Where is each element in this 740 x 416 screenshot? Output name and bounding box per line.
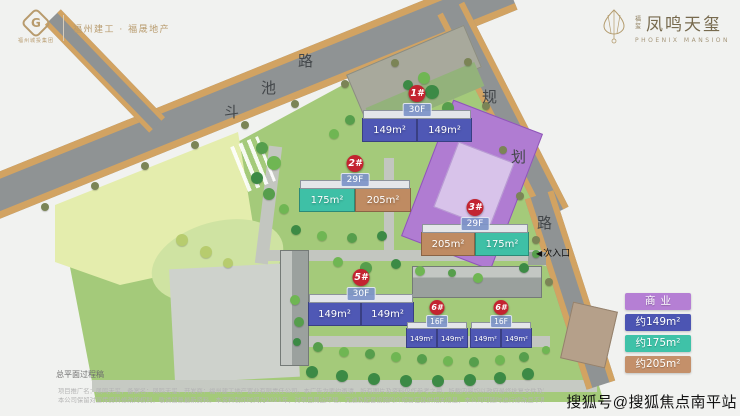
building-number-badge: 5# [353,269,370,286]
tree [391,259,401,269]
tree [425,85,439,99]
tree [464,58,472,66]
building-1#: 1#30F149m²149m² [362,118,472,142]
tree [341,80,349,88]
partner-brands-text: 福州建工 · 福晟地产 [73,22,170,35]
building-number-badge: 6# [430,300,445,315]
floor-count-chip: 30F [403,103,432,117]
project-logo-text: 福玺 凤鸣天玺 PHOENIX MANSION [635,10,730,44]
floor-count-chip: 30F [347,287,376,301]
entrance-arrow-icon: ◀ [536,249,542,258]
legend: 商业约149m²约175m²约205m² [625,293,691,377]
unit-row: 149m²149m² [308,302,414,326]
tree [336,370,348,382]
legend-item: 商业 [625,293,691,310]
unit-area-label: 205m² [355,188,411,212]
tree [519,352,529,362]
tree [391,352,401,362]
road-label-char: 池 [261,77,276,98]
tree [347,233,357,243]
unit-area-label: 149m² [406,328,437,348]
unit-area-label: 175m² [475,232,529,256]
tree [256,142,268,154]
tree [91,182,99,190]
disclaimer-line: 项目推广名：凤鸣天玺，备案名：凤鸣天玺，开发商：福州建工地产置业有限责任公司。本… [58,388,544,397]
entrance-text: 次入口 [543,249,570,259]
tree [464,374,476,386]
tree [377,231,387,241]
disclaimer-line: 本公司保留对宣传资料修改的权利，敬请留意最新资料。本资料制作时间为2021年，对… [58,397,544,406]
fan-emblem-icon [599,8,629,46]
project-subtitle: PHOENIX MANSION [635,37,730,44]
plan-caption: 总平面过程稿 [56,369,104,380]
building-number-badge: 1# [409,85,426,102]
unit-area-label: 149m² [501,328,532,348]
floor-count-chip: 16F [426,315,448,328]
tree [313,342,323,352]
unit-row: 205m²175m² [421,232,529,256]
tree [522,368,534,380]
tree [443,356,453,366]
road-label-char: 划 [511,146,526,167]
tree [448,269,456,277]
building-6#: 6#16F149m²149m² [406,328,468,348]
building-6#: 6#16F149m²149m² [470,328,532,348]
tree [532,236,540,244]
unit-area-label: 149m² [362,118,417,142]
project-title: 凤鸣天玺 [646,10,722,35]
tree [494,372,506,384]
tree [291,100,299,108]
tree [41,203,49,211]
unit-row: 149m²149m² [362,118,472,142]
tree [542,346,550,354]
floor-count-chip: 29F [461,217,490,231]
watermark-text: 搜狐号@搜狐焦点南平站 [566,391,737,412]
road-label-char: 规 [482,86,497,107]
tree [263,188,275,200]
tree [432,375,444,387]
tree [291,225,301,235]
tree [469,357,479,367]
unit-area-label: 149m² [470,328,501,348]
tree [400,375,412,387]
legend-item: 约205m² [625,356,691,373]
road-label-char: 路 [298,50,313,71]
tree [200,246,212,258]
tree [267,156,281,170]
unit-row: 149m²149m² [470,328,532,348]
tree [495,355,505,365]
road-label-char: 路 [537,212,552,233]
tree [365,349,375,359]
tree [294,317,304,327]
tree [418,72,430,84]
tree [293,338,301,346]
building-3#: 3#29F205m²175m² [421,232,529,256]
legend-item: 约149m² [625,314,691,331]
tree [251,172,263,184]
tree [279,204,289,214]
tree [317,231,327,241]
secondary-entrance-label: ◀次入口 [536,246,570,259]
tree [290,295,300,305]
group-logo-icon: G [20,7,51,38]
floor-count-chip: 29F [341,173,370,187]
tree [391,59,399,67]
tree [191,141,199,149]
tree [417,354,427,364]
unit-area-label: 205m² [421,232,475,256]
tree [415,266,425,276]
project-logo-prefix: 福玺 [635,16,643,30]
tree [368,373,380,385]
tree [141,162,149,170]
tree [499,146,507,154]
building-number-badge: 6# [494,300,509,315]
building-5#: 5#30F149m²149m² [308,302,414,326]
legend-item: 约175m² [625,335,691,352]
gray-building-west [280,250,309,366]
building-number-badge: 3# [467,199,484,216]
developer-logos: G 福州城投集团 福州建工 · 福晟地产 [18,12,170,44]
project-logo: 福玺 凤鸣天玺 PHOENIX MANSION [599,8,730,46]
group-logo: G 福州城投集团 [18,12,54,44]
unit-area-label: 149m² [417,118,472,142]
tree [223,258,233,268]
building-2#: 2#29F175m²205m² [299,188,411,212]
tree [516,192,524,200]
building-number-badge: 2# [347,155,364,172]
disclaimer: 项目推广名：凤鸣天玺，备案名：凤鸣天玺，开发商：福州建工地产置业有限责任公司。本… [58,388,544,405]
site-plan-image: 斗池路规划路1#30F149m²149m²2#29F175m²205m²3#29… [0,0,740,416]
unit-area-label: 149m² [437,328,468,348]
tree [345,115,355,125]
tree [333,257,343,267]
road-label-char: 斗 [224,101,239,122]
tree [306,366,318,378]
tree [241,121,249,129]
group-logo-name: 福州城投集团 [18,37,54,44]
tree [545,278,553,286]
unit-row: 149m²149m² [406,328,468,348]
unit-row: 175m²205m² [299,188,411,212]
unit-area-label: 175m² [299,188,355,212]
tree [519,263,529,273]
unit-area-label: 149m² [308,302,361,326]
tree [339,347,349,357]
tree [473,273,483,283]
floor-count-chip: 16F [490,315,512,328]
tree [329,129,339,139]
logo-divider [63,15,64,41]
tree [176,234,188,246]
